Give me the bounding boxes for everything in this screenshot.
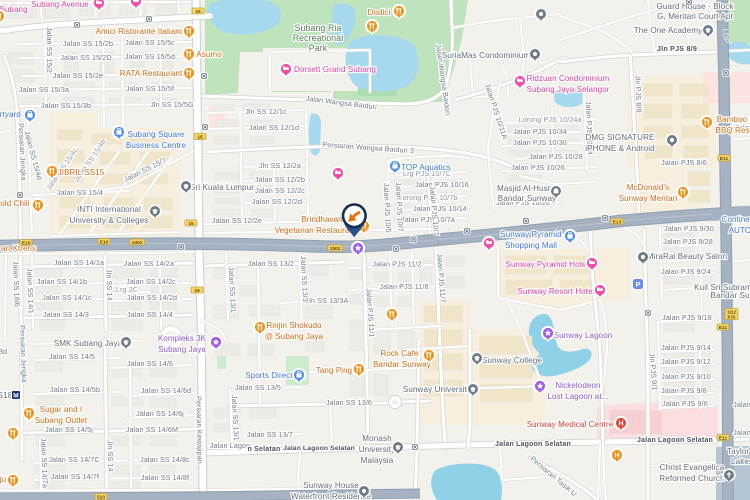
svg-text:LDP: LDP (721, 29, 730, 44)
svg-text:Jalan PJS 9/8: Jalan PJS 9/8 (661, 386, 707, 395)
svg-text:Sugar and I: Sugar and I (40, 405, 82, 414)
svg-text:Jalan SS 13/7: Jalan SS 13/7 (247, 430, 293, 439)
svg-text:Jalan SS 14/3: Jalan SS 14/3 (43, 310, 89, 319)
svg-text:Lakesi: Lakesi (731, 457, 750, 466)
svg-text:Lorong PJS 10/24a: Lorong PJS 10/24a (518, 115, 581, 124)
svg-text:Sunway Pyramid Hotel: Sunway Pyramid Hotel (506, 260, 589, 269)
svg-text:M: M (13, 393, 18, 400)
svg-text:Jalan PJS 11/8: Jalan PJS 11/8 (379, 282, 428, 291)
svg-text:Jalan SS 15/2D: Jalan SS 15/2D (60, 53, 111, 62)
svg-text:Bandar Su: Bandar Su (710, 291, 749, 300)
svg-text:Bandar Sunway: Bandar Sunway (373, 360, 431, 369)
svg-text:BBQ Resta: BBQ Resta (716, 126, 750, 135)
svg-text:3d: 3d (0, 347, 7, 356)
svg-text:Jalan SS 14/6: Jalan SS 14/6 (127, 359, 173, 368)
svg-text:Rinjin Shokudo: Rinjin Shokudo (266, 321, 322, 330)
svg-text:Jalan PJS 10/7a: Jalan PJS 10/7a (401, 215, 455, 224)
svg-text:Jalan PJS 10/34: Jalan PJS 10/34 (513, 127, 567, 136)
svg-text:Nickelodeon: Nickelodeon (555, 381, 600, 390)
svg-text:Lorong PJS 10/7b: Lorong PJS 10/7b (398, 193, 457, 202)
svg-text:Jalan SS 14/8f: Jalan SS 14/8f (141, 473, 189, 482)
svg-text:Sunway Mentari: Sunway Mentari (619, 194, 678, 203)
svg-text:Jalan PJS 9/12: Jalan PJS 9/12 (661, 357, 711, 366)
svg-text:E10: E10 (22, 240, 31, 246)
svg-text:old Chili: old Chili (0, 199, 29, 208)
svg-text:Subang Ria: Subang Ria (295, 23, 342, 33)
svg-text:Dorsett Grand Subang: Dorsett Grand Subang (294, 65, 376, 74)
svg-text:Sunway Resort Hotel: Sunway Resort Hotel (517, 287, 594, 296)
svg-text:Continen: Continen (722, 215, 750, 224)
svg-text:University: University (359, 445, 396, 454)
svg-text:Jalan PJS 10/26: Jalan PJS 10/26 (511, 163, 565, 172)
svg-text:Subang Outlet: Subang Outlet (35, 416, 88, 425)
svg-text:Sunway House: Sunway House (303, 481, 359, 490)
svg-text:Christ Evangelica: Christ Evangelica (660, 463, 725, 472)
svg-text:Jalan SS 14/1: Jalan SS 14/1 (25, 268, 36, 314)
svg-text:Subang Square: Subang Square (128, 130, 185, 139)
svg-text:Jalan SS 15/5f: Jalan SS 15/5f (126, 84, 174, 93)
svg-text:P: P (635, 280, 640, 289)
svg-text:urtyard: urtyard (0, 110, 21, 119)
svg-text:Jalan SS 12/1d: Jalan SS 12/1d (249, 123, 299, 132)
svg-text:Jalan PJS 9/10: Jalan PJS 9/10 (661, 372, 711, 381)
svg-text:Sunway Lagoon: Sunway Lagoon (554, 331, 613, 340)
svg-text:Jalan SS 14/5j: Jalan SS 14/5j (45, 425, 93, 434)
svg-text:Jalan SS 14/7C: Jalan SS 14/7C (48, 455, 99, 464)
svg-text:1002: 1002 (330, 246, 341, 252)
svg-text:Sunway Medical Centre: Sunway Medical Centre (527, 420, 614, 429)
svg-text:Jalan PJS 9/14: Jalan PJS 9/14 (661, 343, 711, 352)
svg-text:Masjid Al-Husna: Masjid Al-Husna (497, 184, 557, 193)
svg-text:McDonald's: McDonald's (627, 183, 670, 192)
svg-text:15: 15 (197, 134, 203, 140)
svg-text:Jalan Lagoon Selatan: Jalan Lagoon Selatan (283, 445, 355, 452)
svg-text:Jalan SS 15/2e: Jalan SS 15/2e (53, 71, 103, 80)
svg-text:Lost Lagoon at...: Lost Lagoon at... (547, 392, 608, 401)
svg-text:Recreational: Recreational (293, 33, 344, 43)
svg-text:Jalan SS 14/1a: Jalan SS 14/1a (54, 258, 104, 267)
svg-text:Jalan SS 18/6: Jalan SS 18/6 (11, 261, 22, 307)
svg-text:University & Colleges: University & Colleges (69, 216, 148, 225)
svg-text:Dodici: Dodici (368, 8, 391, 17)
svg-text:Subang Jaya: Subang Jaya (158, 345, 206, 354)
svg-text:Reformed Church: Reformed Church (659, 474, 724, 483)
svg-text:Jalan PJS 9/28: Jalan PJS 9/28 (663, 237, 713, 246)
svg-text:Jalan PJS 10/16: Jalan PJS 10/16 (415, 180, 469, 189)
svg-text:15: 15 (195, 9, 201, 15)
svg-text:Jalan: Jalan (733, 400, 750, 409)
svg-text:Jalan SS 15/2: Jalan SS 15/2 (45, 27, 54, 73)
svg-text:RATA Restaurant: RATA Restaurant (120, 69, 183, 78)
svg-text:Jalan SS-14/6d: Jalan SS-14/6d (141, 386, 192, 395)
svg-text:Jln SS 13/3A: Jln SS 13/3A (306, 296, 349, 305)
svg-text:JIBRIL SS15: JIBRIL SS15 (58, 168, 105, 177)
svg-text:Jalan SS 15/3a: Jalan SS 15/3a (19, 85, 69, 94)
svg-text:Guard House - Block: Guard House - Block (656, 2, 734, 11)
svg-text:1002: 1002 (132, 240, 143, 246)
svg-text:Jalan SS 14/8c: Jalan SS 14/8c (140, 455, 190, 464)
svg-text:Jalan SS 14/5b: Jalan SS 14/5b (50, 385, 100, 394)
svg-text:Shopping Mall: Shopping Mall (505, 241, 557, 250)
svg-text:Asumo: Asumo (196, 50, 222, 59)
svg-text:E11: E11 (719, 435, 728, 441)
svg-text:Sunway University: Sunway University (403, 385, 472, 394)
svg-text:Jalan SS 14/7f: Jalan SS 14/7f (51, 472, 99, 481)
svg-text:15: 15 (194, 288, 200, 294)
svg-text:AUTO: AUTO (729, 226, 750, 235)
svg-text:Rock Cafe -: Rock Cafe - (380, 349, 424, 358)
svg-text:Jln SS 12/1c: Jln SS 12/1c (245, 107, 287, 116)
svg-text:Jalan PJS 9/30: Jalan PJS 9/30 (664, 224, 714, 233)
svg-text:Jalan SS 13/6: Jalan SS 13/6 (326, 398, 372, 407)
svg-text:n Selatan: n Selatan (248, 446, 281, 453)
svg-text:Jalan SS 14/6j: Jalan SS 14/6j (136, 409, 184, 418)
svg-text:E11: E11 (719, 325, 728, 331)
svg-text:Jalan SS 12/2e: Jalan SS 12/2e (212, 216, 262, 225)
svg-text:E10: E10 (100, 239, 109, 245)
svg-text:E13: E13 (613, 219, 622, 225)
svg-text:Sunway Pyramid: Sunway Pyramid (500, 230, 561, 239)
svg-text:Subang Jaya Selangor: Subang Jaya Selangor (527, 85, 610, 94)
svg-text:@ Subang Jaya: @ Subang Jaya (265, 332, 324, 341)
svg-text:Jalan SS 15/2b: Jalan SS 15/2b (63, 39, 113, 48)
svg-text:Business Centre: Business Centre (126, 141, 187, 150)
svg-text:Bandar Sunway: Bandar Sunway (498, 194, 557, 203)
svg-text:iPHONE & Android: iPHONE & Android (585, 144, 655, 153)
svg-text:Jalan SS 14/1b: Jalan SS 14/1b (37, 277, 87, 286)
svg-text:Jalan SS 15/5d: Jalan SS 15/5d (125, 52, 175, 61)
svg-text:Jalan SS 13/5: Jalan SS 13/5 (235, 383, 281, 392)
svg-text:Jalan SS 14/6M: Jalan SS 14/6M (126, 425, 178, 434)
svg-text:TOP Aquatics: TOP Aquatics (401, 163, 451, 172)
svg-text:Jalan SS 14/2d: Jalan SS 14/2d (127, 293, 177, 302)
svg-text:SuriaMas Condominium: SuriaMas Condominium (442, 51, 531, 60)
svg-text:Jln SS 14: Jln SS 14 (104, 269, 114, 301)
svg-text:Jalan SS 12/2b: Jalan SS 12/2b (255, 175, 305, 184)
svg-text:Jalan SS 15/3b: Jalan SS 15/3b (41, 101, 91, 110)
svg-text:Jln PJS 8/9: Jln PJS 8/9 (633, 75, 643, 113)
svg-text:Jalan PJS 9/24: Jalan PJS 9/24 (661, 267, 711, 276)
svg-text:S18: S18 (0, 391, 13, 400)
svg-text:Sri Kuala Lumpur: Sri Kuala Lumpur (190, 183, 254, 192)
svg-text:Park: Park (309, 43, 328, 53)
svg-text:Jalan PJS 9/18: Jalan PJS 9/18 (662, 313, 712, 322)
svg-text:Jalan SS 14/2a: Jalan SS 14/2a (124, 259, 174, 268)
svg-text:Monash: Monash (362, 434, 391, 443)
svg-text:MiraRai Beauty Salon: MiraRai Beauty Salon (647, 252, 727, 261)
svg-text:Bamboo H: Bamboo H (717, 115, 750, 124)
svg-text:Jalan SS 15/5c: Jalan SS 15/5c (125, 38, 175, 47)
svg-text:H: H (614, 453, 619, 460)
svg-text:510: 510 (97, 494, 105, 500)
svg-text:Jalan PJS 11/2: Jalan PJS 11/2 (372, 260, 421, 269)
svg-text:Jalan SS 12/2d: Jalan SS 12/2d (252, 197, 302, 206)
svg-text:The One Academy: The One Academy (634, 26, 703, 35)
svg-text:Jalan SS 13/2: Jalan SS 13/2 (248, 259, 294, 268)
svg-text:Jalan SS 14/1c: Jalan SS 14/1c (42, 293, 92, 302)
svg-text:Jln SS 14: Jln SS 14 (105, 440, 115, 472)
svg-text:H: H (618, 421, 623, 428)
svg-text:Jalan Lagoon Selatan: Jalan Lagoon Selatan (637, 437, 713, 444)
svg-text:Taylor's: Taylor's (727, 447, 750, 456)
svg-text:Jln SS 12/2a: Jln SS 12/2a (259, 161, 301, 170)
svg-text:Jalan SS 14/4: Jalan SS 14/4 (127, 310, 173, 319)
svg-text:Persiaran Kewajipan: Persiaran Kewajipan (194, 396, 204, 464)
svg-text:Subang Avenue: Subang Avenue (31, 0, 89, 9)
svg-text:PJS: PJS (728, 314, 736, 319)
svg-text:Jalan PJS 8/6: Jalan PJS 8/6 (661, 158, 707, 167)
svg-text:Malaysia: Malaysia (361, 456, 394, 465)
svg-text:Brindhavan: Brindhavan (301, 215, 342, 224)
svg-text:Jalan SS 14/5: Jalan SS 14/5 (49, 352, 95, 361)
svg-text:Jln SS 15/5G: Jln SS 15/5G (150, 100, 194, 109)
svg-text:Kompleks 3K: Kompleks 3K (158, 334, 207, 343)
svg-text:Jalan Lagoon Selatan: Jalan Lagoon Selatan (495, 441, 571, 448)
svg-text:Jalan Lagoo: Jalan Lagoo (210, 441, 250, 450)
svg-text:G, Mentari Court Apt: G, Mentari Court Apt (657, 12, 733, 21)
svg-text:SMK Subang Jaya: SMK Subang Jaya (54, 339, 123, 348)
svg-text:INTI International: INTI International (77, 205, 141, 214)
svg-text:15: 15 (188, 221, 194, 227)
svg-text:E11: E11 (720, 156, 729, 162)
svg-text:Jalan SS 12/2c: Jalan SS 12/2c (255, 186, 305, 195)
svg-text:Amici Ristorante Italiano: Amici Ristorante Italiano (96, 27, 185, 36)
svg-text:Tang Ping: Tang Ping (316, 366, 352, 375)
svg-text:Vegetarian Restaura: Vegetarian Restaura (275, 226, 350, 235)
svg-text:Jalan PJS 10/30: Jalan PJS 10/30 (513, 138, 567, 147)
svg-text:Jalan PJS 10/28: Jalan PJS 10/28 (529, 152, 583, 161)
svg-text:Jalan SS 15/4: Jalan SS 15/4 (57, 188, 103, 197)
svg-text:Sunway College: Sunway College (482, 356, 542, 365)
svg-text:Jalan: Jalan (733, 428, 750, 437)
svg-text:Jalan PJS 9/6: Jalan PJS 9/6 (662, 399, 708, 408)
svg-text:Sports Direct: Sports Direct (245, 371, 293, 380)
svg-text:Jln PJS 8/9: Jln PJS 8/9 (657, 44, 697, 53)
svg-text:DMG SIGNATURE: DMG SIGNATURE (585, 133, 655, 142)
svg-text:Jalan SS 14/7a: Jalan SS 14/7a (39, 438, 50, 488)
svg-text:Ridzuan Condominium: Ridzuan Condominium (527, 74, 610, 83)
svg-text:ju: ju (0, 475, 6, 484)
